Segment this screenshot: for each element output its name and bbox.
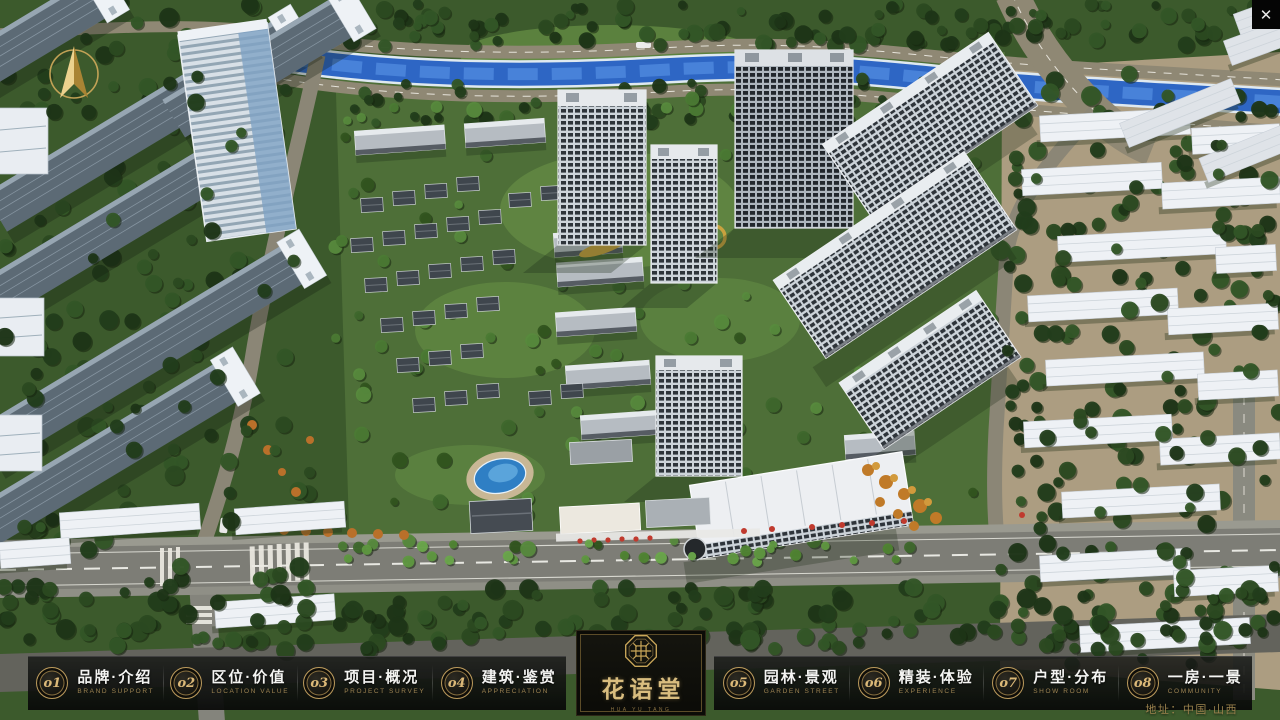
nav-label-en: BRAND SUPPORT — [77, 689, 154, 696]
nav-item-brand-intro[interactable]: o1 品牌·介绍BRAND SUPPORT — [28, 657, 163, 709]
nav-label-zh: 建筑·鉴赏 — [482, 670, 557, 685]
nav-label-en: APPRECIATION — [482, 689, 549, 696]
nav-item-floorplan-distribution[interactable]: o7 户型·分布SHOW ROOM — [983, 657, 1118, 709]
nav-number-badge: o6 — [858, 667, 890, 699]
brand-tagline: HUA YU TANG — [611, 707, 672, 713]
logo-panel[interactable]: 花语堂 HUA YU TANG — [576, 630, 706, 716]
nav-label-en: EXPERIENCE — [899, 689, 957, 696]
nav-number-badge: o2 — [170, 667, 202, 699]
nav-label-zh: 项目·概况 — [344, 670, 419, 685]
nav-label-zh: 户型·分布 — [1033, 670, 1108, 685]
nav-number-badge: o8 — [1127, 667, 1159, 699]
nav-label-zh: 园林·景观 — [764, 670, 839, 685]
nav-label-zh: 一房·一景 — [1168, 670, 1243, 685]
nav-label-en: COMMUNITY — [1168, 689, 1222, 696]
nav-label-en: PROJECT SURVEY — [344, 689, 425, 696]
nav-number-badge: o5 — [723, 667, 755, 699]
nav-label-zh: 区位·价值 — [211, 670, 286, 685]
nav-label-zh: 精装·体验 — [899, 670, 974, 685]
nav-number-badge: o4 — [441, 667, 473, 699]
nav-number-badge: o3 — [303, 667, 335, 699]
app-window: ✕ o1 品牌·介绍BRAND SUPPORT o2 区位·价值LOCATION… — [0, 0, 1280, 720]
nav-number-badge: o7 — [992, 667, 1024, 699]
close-button[interactable]: ✕ — [1252, 0, 1280, 29]
nav-item-location-value[interactable]: o2 区位·价值LOCATION VALUE — [163, 657, 298, 709]
nav-item-interior-experience[interactable]: o6 精装·体验EXPERIENCE — [849, 657, 984, 709]
nav-label-en: LOCATION VALUE — [211, 689, 289, 696]
site-plan-3d-view[interactable] — [0, 0, 1280, 720]
nav-item-architecture-appreciation[interactable]: o4 建筑·鉴赏APPRECIATION — [432, 657, 567, 709]
brand-seal-icon — [624, 634, 658, 668]
project-address: 地址：中国·山西 — [1145, 701, 1238, 717]
nav-label-en: GARDEN STREET — [764, 689, 840, 696]
nav-number-badge: o1 — [36, 667, 68, 699]
nav-label-zh: 品牌·介绍 — [77, 670, 152, 685]
nav-label-en: SHOW ROOM — [1033, 689, 1090, 696]
nav-item-project-overview[interactable]: o3 项目·概况PROJECT SURVEY — [297, 657, 432, 709]
nav-item-garden-landscape[interactable]: o5 园林·景观GARDEN STREET — [714, 657, 849, 709]
brand-name: 花语堂 — [597, 670, 686, 704]
bottom-navbar-left: o1 品牌·介绍BRAND SUPPORT o2 区位·价值LOCATION V… — [28, 656, 566, 710]
